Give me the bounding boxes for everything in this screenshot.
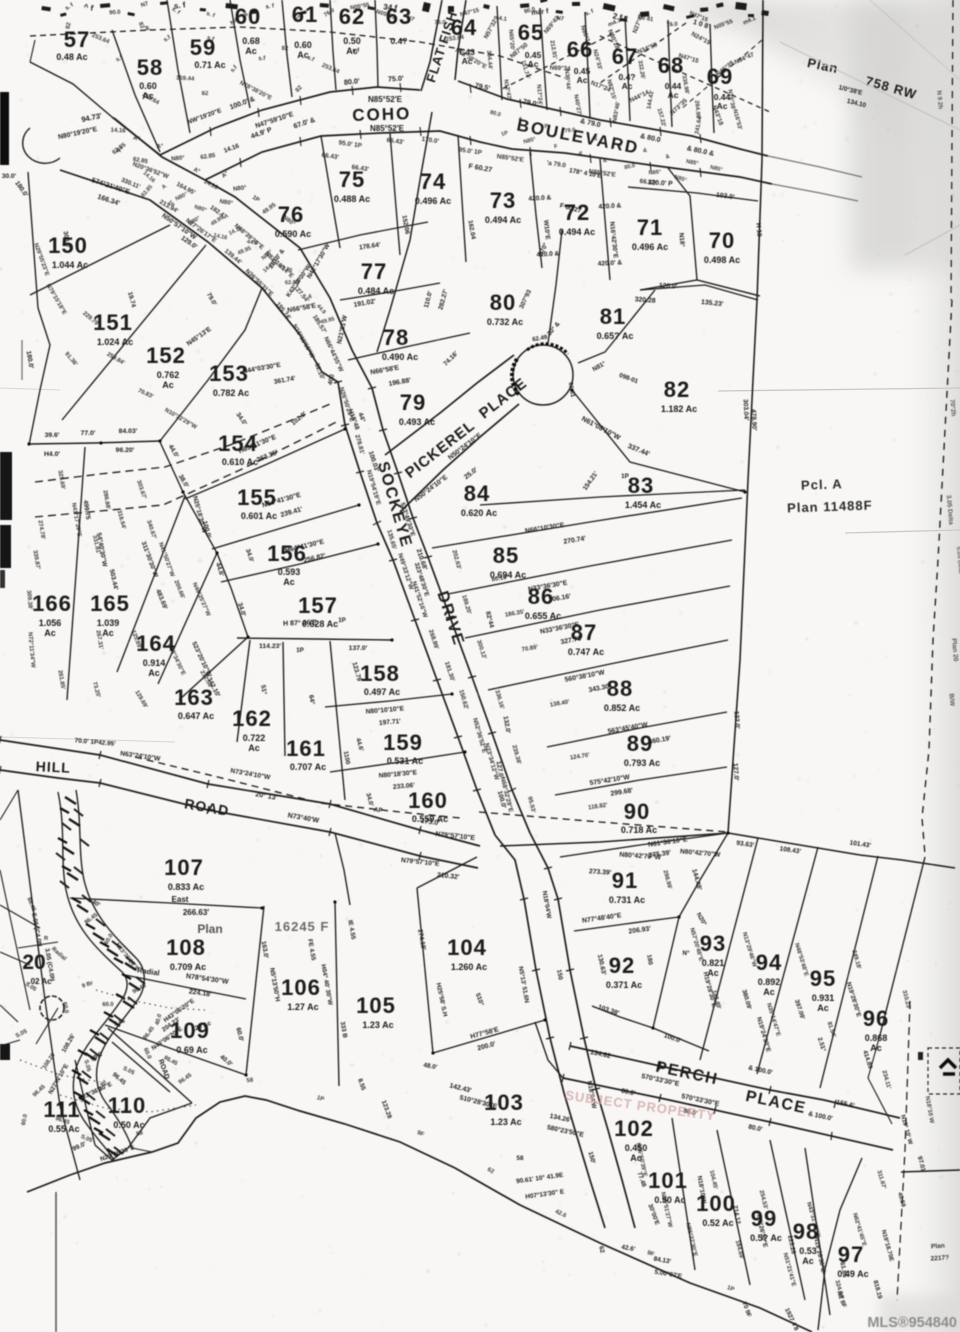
svg-text:77.0': 77.0'	[81, 430, 96, 437]
svg-text:s. f: s. f	[265, 3, 274, 10]
svg-text:Ac: Ac	[622, 81, 633, 91]
svg-text:Plan: Plan	[931, 1243, 945, 1251]
svg-text:^ f: ^ f	[83, 2, 94, 13]
svg-text:77: 77	[361, 259, 387, 284]
svg-text:0.793 Ac: 0.793 Ac	[624, 758, 660, 768]
svg-text:320.28: 320.28	[634, 296, 655, 304]
svg-text:85: 85	[493, 543, 519, 568]
svg-text:165: 165	[90, 591, 130, 616]
svg-text:114.23': 114.23'	[259, 643, 281, 650]
svg-text:30.0': 30.0'	[2, 173, 17, 180]
svg-text:0.497 Ac: 0.497 Ac	[364, 687, 400, 697]
svg-text:70°2h: 70°2h	[948, 399, 957, 417]
svg-text:420.0 &: 420.0 &	[598, 202, 621, 210]
svg-text:0.68: 0.68	[242, 36, 260, 46]
svg-text:420.0 &: 420.0 &	[528, 194, 551, 202]
svg-text:0.590 Ac: 0.590 Ac	[275, 229, 311, 239]
svg-text:B/W: B/W	[947, 693, 955, 707]
svg-text:0.821: 0.821	[702, 958, 725, 968]
svg-text:127.0': 127.0'	[731, 763, 739, 782]
svg-text:N85°52'E: N85°52'E	[368, 95, 403, 104]
svg-text:0.60: 0.60	[294, 40, 312, 50]
svg-text:H 18: H 18	[754, 223, 762, 238]
svg-text:0.647 Ac: 0.647 Ac	[178, 711, 214, 721]
svg-text:82: 82	[202, 91, 209, 97]
svg-text:0.50 Ac: 0.50 Ac	[654, 1195, 685, 1205]
svg-text:0.52 Ac: 0.52 Ac	[702, 1218, 733, 1228]
svg-text:132.0': 132.0'	[732, 711, 740, 730]
svg-text:107: 107	[164, 855, 204, 880]
svg-text:95: 95	[810, 966, 836, 991]
svg-text:79: 79	[400, 390, 426, 415]
svg-text:0.731 Ac: 0.731 Ac	[609, 895, 645, 905]
svg-text:Ac: Ac	[577, 75, 588, 85]
svg-text:93: 93	[700, 931, 726, 956]
svg-text:MLS®954840: MLS®954840	[867, 1315, 957, 1331]
svg-text:2217?: 2217?	[930, 1254, 949, 1262]
svg-text:0.892: 0.892	[758, 977, 781, 987]
svg-text:0.601 Ac: 0.601 Ac	[241, 511, 277, 521]
svg-text:0.610 Ac: 0.610 Ac	[222, 457, 258, 467]
svg-text:60.0: 60.0	[102, 1002, 113, 1008]
svg-text:Ac: Ac	[102, 628, 114, 638]
svg-text:1.23 Ac: 1.23 Ac	[362, 1020, 393, 1030]
svg-text:0.833 Ac: 0.833 Ac	[168, 882, 204, 892]
svg-text:A°: A°	[156, 144, 164, 151]
svg-text:Ac: Ac	[528, 59, 539, 69]
svg-text:1.23 Ac: 1.23 Ac	[490, 1117, 521, 1127]
svg-text:0.707 Ac: 0.707 Ac	[290, 762, 326, 772]
svg-text:East: East	[172, 895, 189, 904]
svg-text:58: 58	[246, 1078, 254, 1085]
svg-text:HILL: HILL	[35, 758, 71, 776]
svg-text:478.90': 478.90'	[749, 409, 757, 431]
svg-text:0.488 Ac: 0.488 Ac	[334, 194, 370, 204]
svg-text:0.747 Ac: 0.747 Ac	[568, 647, 604, 657]
svg-text:0.494 Ac: 0.494 Ac	[559, 227, 595, 237]
svg-text:0.914: 0.914	[143, 658, 166, 668]
svg-text:0.60: 0.60	[139, 81, 157, 91]
svg-text:166: 166	[32, 591, 72, 616]
svg-text:80: 80	[490, 290, 516, 315]
svg-text:Ac: Ac	[668, 90, 679, 100]
svg-text:106: 106	[281, 975, 321, 1000]
svg-text:1P: 1P	[338, 617, 346, 624]
svg-text:137.0': 137.0'	[349, 645, 368, 652]
svg-text:58: 58	[517, 1155, 524, 1162]
svg-text:94: 94	[756, 950, 782, 975]
svg-text:s.: s.	[145, 25, 151, 32]
svg-text:14.16: 14.16	[110, 127, 126, 134]
svg-text:266.63': 266.63'	[183, 908, 209, 917]
svg-text:120.0': 120.0'	[659, 282, 678, 290]
svg-text:H4.0': H4.0'	[44, 451, 60, 458]
svg-text:61: 61	[292, 2, 318, 27]
svg-text:159: 159	[383, 730, 423, 755]
svg-text:71: 71	[637, 215, 663, 240]
svg-text:1P: 1P	[621, 473, 629, 480]
svg-text:Ac: Ac	[248, 743, 260, 753]
svg-text:Ac: Ac	[245, 46, 257, 56]
svg-text:Pcl. A: Pcl. A	[801, 476, 843, 492]
svg-text:1P: 1P	[296, 647, 304, 654]
svg-text:N80°: N80°	[171, 155, 185, 162]
svg-text:1.024 Ac: 1.024 Ac	[97, 337, 133, 347]
svg-text:0.782 Ac: 0.782 Ac	[213, 388, 249, 398]
svg-text:73: 73	[490, 188, 516, 213]
svg-text:420.0' &: 420.0' &	[598, 259, 623, 267]
svg-text:Ac: Ac	[44, 628, 56, 638]
svg-text:20: 20	[22, 951, 45, 974]
svg-text:0.371 Ac: 0.371 Ac	[606, 980, 642, 990]
svg-text:Ac: Ac	[148, 668, 160, 678]
svg-text:Ac: Ac	[283, 577, 295, 587]
svg-text:0.55 Ac: 0.55 Ac	[48, 1124, 79, 1134]
svg-text:0.496 Ac: 0.496 Ac	[415, 196, 451, 206]
svg-text:0.493 Ac: 0.493 Ac	[399, 417, 435, 427]
svg-text:0.852 Ac: 0.852 Ac	[604, 703, 640, 713]
svg-text:157: 157	[298, 593, 338, 618]
svg-text:N85°: N85°	[648, 169, 661, 176]
svg-text:1.454 Ac: 1.454 Ac	[625, 500, 661, 510]
svg-text:65: 65	[518, 20, 544, 45]
svg-text:0.71 Ac: 0.71 Ac	[194, 60, 225, 70]
svg-text:90.0: 90.0	[109, 10, 121, 17]
svg-text:0.490 Ac: 0.490 Ac	[382, 352, 418, 362]
svg-text:0.931: 0.931	[812, 993, 835, 1003]
svg-text:82: 82	[664, 377, 690, 402]
svg-text:Ac: Ac	[763, 987, 775, 997]
svg-text:0.498 Ac: 0.498 Ac	[704, 255, 740, 265]
svg-text:81: 81	[600, 304, 626, 329]
svg-text:&: &	[603, 158, 608, 164]
svg-text:90: 90	[624, 799, 650, 824]
svg-text:0.50: 0.50	[343, 36, 361, 46]
svg-text:Plan: Plan	[197, 922, 222, 936]
svg-text:0.53: 0.53	[799, 1246, 817, 1256]
svg-text:96: 96	[863, 1006, 889, 1031]
svg-text:0.50 Ac: 0.50 Ac	[113, 1120, 144, 1130]
svg-text:N85°52'E: N85°52'E	[370, 124, 405, 133]
svg-text:102: 102	[614, 1116, 654, 1141]
svg-text:57: 57	[64, 27, 90, 52]
svg-text:&: &	[643, 148, 647, 154]
svg-text:0.620 Ac: 0.620 Ac	[461, 508, 497, 518]
svg-text:62: 62	[339, 4, 365, 29]
svg-text:0.762: 0.762	[157, 370, 180, 380]
svg-text:96.20': 96.20'	[116, 447, 135, 454]
svg-text:Ac: Ac	[817, 1003, 829, 1013]
svg-text:92: 92	[609, 953, 635, 978]
svg-text:COHO: COHO	[352, 104, 412, 125]
svg-text:78: 78	[383, 325, 409, 350]
svg-text:70: 70	[709, 228, 735, 253]
svg-text:160: 160	[408, 788, 448, 813]
svg-text:108: 108	[166, 935, 206, 960]
svg-text:1.260 Ac: 1.260 Ac	[451, 962, 487, 972]
svg-text:158: 158	[360, 661, 400, 686]
svg-text:0.496 Ac: 0.496 Ac	[632, 242, 668, 252]
svg-text:58: 58	[137, 55, 163, 80]
svg-text:1.27 Ac: 1.27 Ac	[287, 1002, 318, 1012]
svg-text:161: 161	[286, 736, 326, 761]
svg-text:91: 91	[612, 868, 638, 893]
svg-text:1.056: 1.056	[39, 618, 62, 628]
svg-text:N18°: N18°	[677, 232, 686, 247]
svg-text:N°: N°	[683, 950, 690, 957]
svg-text:105: 105	[356, 993, 396, 1018]
svg-text:1.182 Ac: 1.182 Ac	[661, 404, 697, 414]
svg-text:16245 F: 16245 F	[275, 919, 330, 934]
svg-text:84.03': 84.03'	[119, 428, 138, 435]
svg-text:39.6': 39.6'	[45, 432, 60, 439]
svg-text:0.732 Ac: 0.732 Ac	[487, 317, 523, 327]
svg-text:60: 60	[235, 4, 261, 29]
svg-text:0.69 Ac: 0.69 Ac	[176, 1045, 207, 1055]
svg-text:0.494 Ac: 0.494 Ac	[485, 215, 521, 225]
svg-text:74: 74	[420, 169, 446, 194]
svg-text:1P: 1P	[541, 124, 549, 131]
svg-text:162: 162	[232, 706, 272, 731]
svg-text:0.48 Ac: 0.48 Ac	[56, 52, 87, 62]
svg-text:84: 84	[464, 481, 490, 506]
svg-text:80.0': 80.0'	[343, 76, 360, 87]
svg-text:0.709 Ac: 0.709 Ac	[170, 962, 206, 972]
svg-text:1.039: 1.039	[97, 618, 120, 628]
svg-text:Ac: Ac	[162, 380, 174, 390]
svg-text:82: 82	[282, 46, 289, 52]
svg-text:Plan 11488F: Plan 11488F	[787, 498, 873, 516]
svg-text:152: 152	[146, 343, 186, 368]
svg-text:H 87° 26'E: H 87° 26'E	[283, 618, 317, 627]
svg-text:75.0': 75.0'	[388, 73, 405, 83]
svg-text:0.722: 0.722	[243, 733, 266, 743]
svg-text:104: 104	[447, 935, 487, 960]
svg-text:Ac: Ac	[802, 1256, 814, 1266]
svg-text:0.4?: 0.4?	[390, 36, 407, 46]
svg-text:303.04': 303.04'	[741, 399, 749, 421]
svg-text:0.868: 0.868	[865, 1033, 888, 1043]
